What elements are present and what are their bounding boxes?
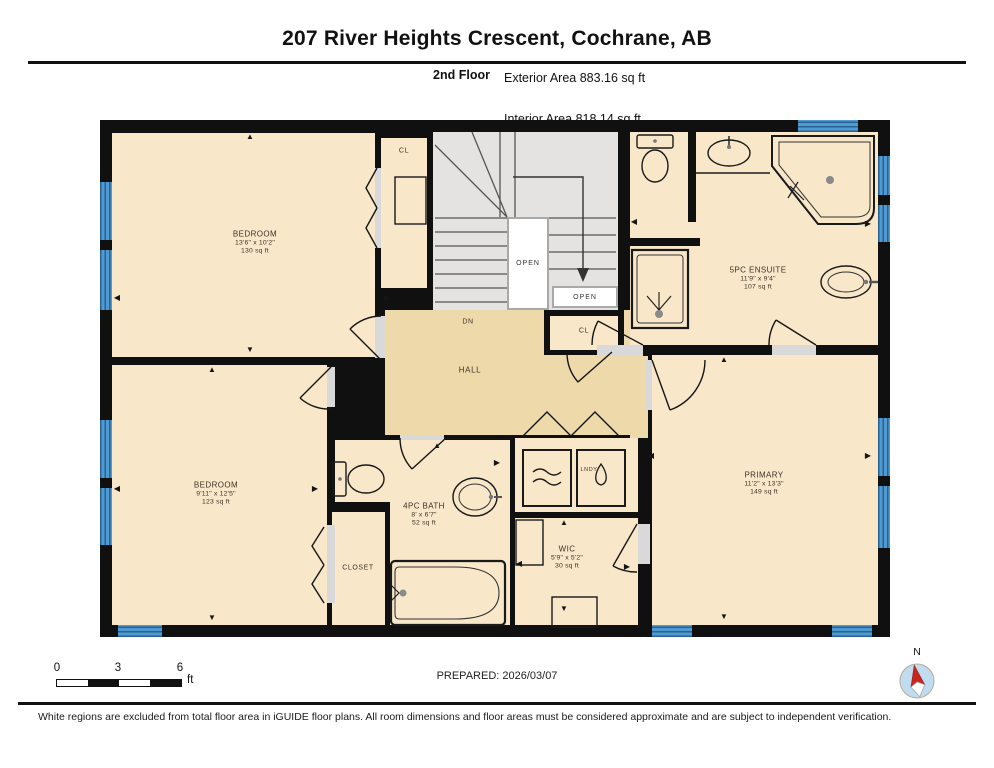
swing-door <box>769 320 816 345</box>
dim-arrow: ▼ <box>246 346 254 354</box>
floor-label: 2nd Floor <box>300 68 490 82</box>
compass-north-label: N <box>913 646 921 658</box>
swing-door <box>592 321 643 345</box>
label-bath: 4PC BATH8' x 6'7"52 sq ft <box>403 502 445 527</box>
plan-linework <box>100 120 890 637</box>
floor-plan-canvas: OPEN OPEN <box>100 120 890 637</box>
dim-arrow: ▼ <box>208 614 216 622</box>
swing-door <box>567 352 612 382</box>
label-hall: HALL <box>459 366 481 375</box>
dim-arrow: ▲ <box>560 519 568 527</box>
swing-door <box>350 316 381 360</box>
dim-arrow: ◀ <box>648 452 654 460</box>
bifold-door <box>312 527 324 603</box>
prepared-date: PREPARED: 2026/03/07 <box>0 670 994 682</box>
label-cl-top: CL <box>399 148 409 155</box>
dim-arrow: ▶ <box>865 452 871 460</box>
dim-arrow: ▶ <box>865 220 871 228</box>
label-primary: PRIMARY11'2" x 13'3"149 sq ft <box>744 471 783 496</box>
dim-arrow: ◀ <box>114 485 120 493</box>
label-closet: CLOSET <box>342 565 374 572</box>
stat-exterior: Exterior Area 883.16 sq ft <box>504 71 645 85</box>
corner-tub-icon <box>772 136 874 224</box>
dim-arrow: ▶ <box>384 294 390 302</box>
swing-door <box>652 360 705 410</box>
wic-shelf <box>552 597 597 627</box>
stair-treads <box>435 132 616 302</box>
label-bedroom-bottom: BEDROOM9'11" x 12'5"123 sq ft <box>194 481 238 506</box>
stair-down-arrow <box>513 177 589 282</box>
page-title: 207 River Heights Crescent, Cochrane, AB <box>0 27 994 51</box>
label-dn: DN <box>462 319 473 326</box>
washer-icon <box>523 450 571 506</box>
dim-arrow: ▼ <box>720 613 728 621</box>
label-wic: WIC5'9" x 5'2"30 sq ft <box>551 545 583 570</box>
label-ensuite: 5PC ENSUITE11'9" x 9'4"107 sq ft <box>730 266 787 291</box>
dim-arrow: ◀ <box>516 560 522 568</box>
closet-shelf <box>395 177 426 224</box>
label-bedroom-top: BEDROOM13'6" x 10'2"130 sq ft <box>233 230 277 255</box>
dim-arrow: ▼ <box>560 605 568 613</box>
toilet-icon <box>642 150 668 182</box>
doors <box>300 168 816 603</box>
dim-arrow: ▶ <box>494 459 500 467</box>
dim-arrow: ▶ <box>312 485 318 493</box>
bathtub-icon <box>391 561 505 625</box>
dim-arrow: ▲ <box>433 442 441 450</box>
dim-arrow: ▲ <box>208 366 216 374</box>
compass: N <box>895 643 939 705</box>
label-laundry: LNDY <box>580 467 597 473</box>
swing-door <box>300 367 331 409</box>
dim-arrow: ▶ <box>624 563 630 571</box>
dim-arrow: ▲ <box>246 133 254 141</box>
label-cl-mid: CL <box>579 328 589 335</box>
disclaimer-text: White regions are excluded from total fl… <box>38 711 968 723</box>
fixtures <box>333 135 878 627</box>
footer-divider <box>18 702 976 705</box>
toilet-icon <box>348 465 384 493</box>
dim-arrow: ◀ <box>631 218 637 226</box>
floor-plan-page: 207 River Heights Crescent, Cochrane, AB… <box>0 0 994 768</box>
dim-arrow: ▲ <box>720 356 728 364</box>
dryer-icon <box>577 450 625 506</box>
bifold-door <box>523 412 619 436</box>
dim-arrow: ◀ <box>114 294 120 302</box>
title-divider <box>28 61 966 64</box>
bifold-door <box>366 168 377 248</box>
